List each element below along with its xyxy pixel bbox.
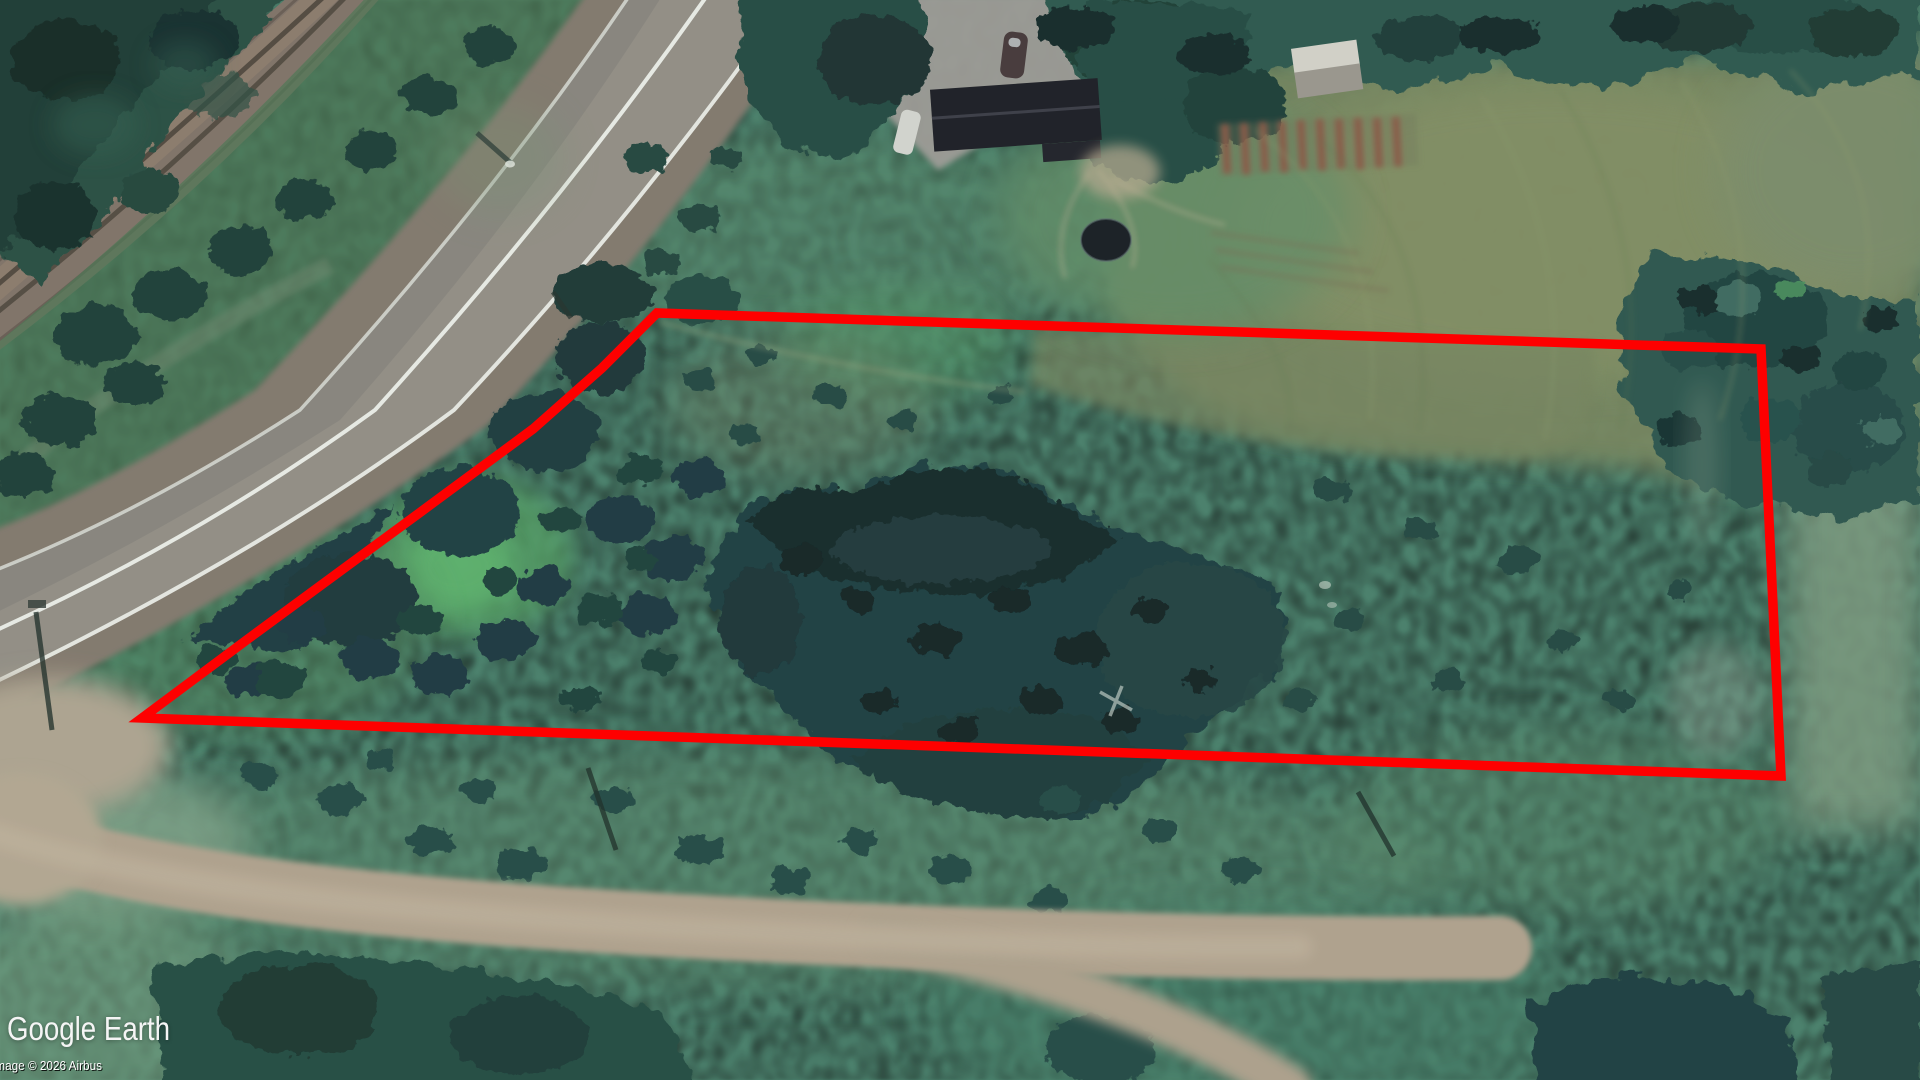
svg-text:Image © 2026 Airbus: Image © 2026 Airbus xyxy=(0,1059,102,1073)
svg-text:Google Earth: Google Earth xyxy=(7,1010,170,1047)
